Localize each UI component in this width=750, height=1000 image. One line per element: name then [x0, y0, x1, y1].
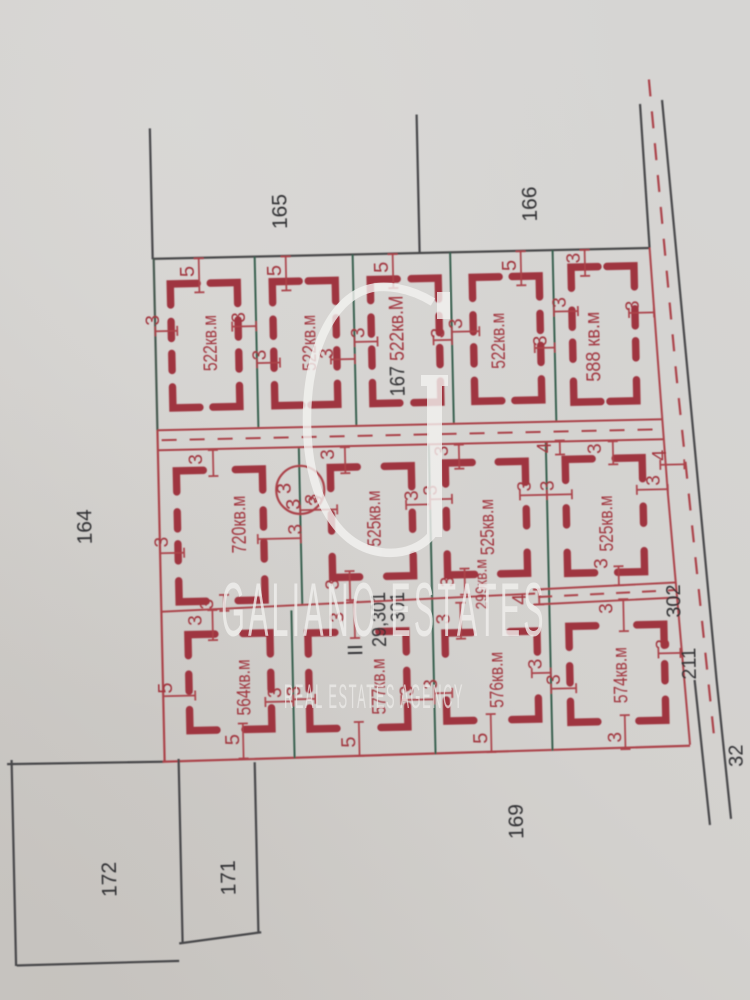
- svg-text:3: 3: [197, 599, 218, 610]
- svg-text:3: 3: [596, 603, 617, 614]
- svg-text:525кв.м: 525кв.м: [594, 495, 617, 552]
- svg-text:4: 4: [534, 442, 556, 454]
- svg-text:3: 3: [348, 327, 369, 338]
- svg-text:GALIANO ESTATES: GALIANO ESTATES: [221, 569, 547, 653]
- svg-text:302: 302: [663, 584, 686, 618]
- svg-text:525кв.м: 525кв.м: [476, 499, 499, 556]
- svg-text:3: 3: [550, 297, 571, 308]
- svg-text:3: 3: [318, 449, 339, 460]
- svg-text:574кв.м: 574кв.м: [609, 647, 632, 704]
- svg-text:3: 3: [653, 639, 674, 650]
- svg-text:3: 3: [605, 732, 626, 743]
- svg-text:3: 3: [585, 443, 606, 454]
- svg-text:REAL ESTATES AGENCY: REAL ESTATES AGENCY: [284, 679, 464, 716]
- svg-text:720кв.м: 720кв.м: [227, 495, 250, 553]
- svg-text:169: 169: [505, 804, 529, 840]
- svg-text:3: 3: [185, 615, 206, 626]
- svg-text:576кв.м: 576кв.м: [485, 652, 508, 709]
- svg-text:3: 3: [446, 318, 467, 329]
- svg-text:172: 172: [98, 862, 122, 898]
- svg-text:5: 5: [499, 260, 521, 272]
- svg-text:5: 5: [470, 732, 492, 744]
- svg-text:3: 3: [525, 659, 546, 670]
- svg-text:3: 3: [544, 674, 565, 685]
- svg-text:5: 5: [155, 682, 177, 694]
- svg-text:3: 3: [515, 481, 536, 492]
- svg-text:5: 5: [264, 265, 286, 277]
- svg-text:171: 171: [217, 860, 241, 896]
- svg-text:522кв.м: 522кв.м: [198, 315, 221, 372]
- svg-text:525кв.м: 525кв.м: [362, 490, 385, 547]
- svg-text:3: 3: [623, 300, 644, 311]
- svg-text:167 522кв.М: 167 522кв.М: [384, 295, 410, 396]
- svg-text:3: 3: [644, 475, 665, 486]
- svg-text:3: 3: [564, 253, 585, 264]
- svg-text:3: 3: [286, 524, 307, 535]
- svg-text:3: 3: [229, 312, 250, 323]
- svg-text:5: 5: [338, 736, 360, 748]
- svg-text:3: 3: [152, 537, 173, 548]
- svg-text:32: 32: [725, 744, 747, 767]
- svg-text:3: 3: [265, 687, 286, 698]
- svg-text:3: 3: [274, 483, 296, 495]
- svg-text:4: 4: [649, 450, 671, 462]
- svg-text:3: 3: [186, 454, 207, 465]
- svg-text:3: 3: [402, 490, 423, 501]
- svg-text:3: 3: [538, 480, 559, 491]
- svg-text:588 кв.м: 588 кв.м: [582, 312, 606, 382]
- svg-text:3: 3: [530, 335, 551, 346]
- svg-text:3: 3: [250, 349, 271, 360]
- svg-text:564кв.м: 564кв.м: [232, 659, 255, 716]
- svg-text:165: 165: [268, 194, 292, 230]
- svg-text:5: 5: [222, 734, 244, 746]
- svg-text:5: 5: [177, 266, 199, 278]
- svg-text:3: 3: [143, 315, 164, 326]
- svg-text:522кв.м: 522кв.м: [486, 313, 509, 370]
- svg-text:211: 211: [678, 648, 701, 680]
- svg-text:5: 5: [371, 262, 393, 274]
- svg-text:164: 164: [73, 509, 97, 545]
- svg-text:166: 166: [518, 186, 542, 222]
- svg-text:3: 3: [591, 558, 612, 569]
